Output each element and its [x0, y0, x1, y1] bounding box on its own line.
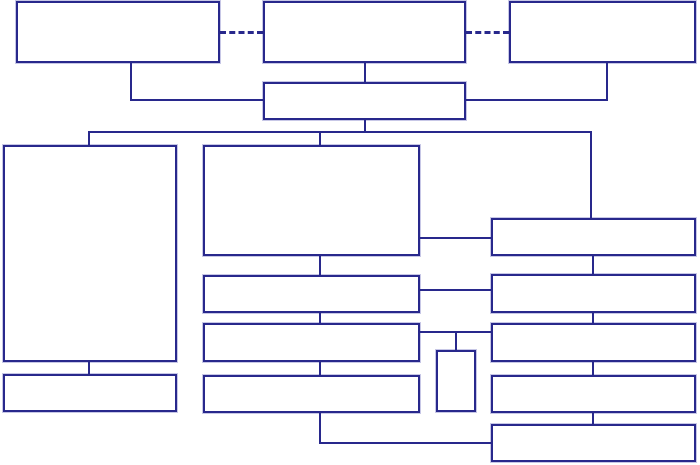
box-left-tall	[3, 145, 177, 362]
box-mid-large	[203, 145, 420, 256]
connector-dash-topleft-topcenter	[220, 31, 263, 34]
connector-topcenter-to-level2	[364, 63, 366, 82]
connector-mid4-to-right5-seg1	[319, 413, 321, 444]
connector-topleft-to-level2-seg2	[130, 99, 265, 101]
box-right-row2	[491, 274, 696, 313]
connector-right1-to-right2	[592, 256, 594, 274]
box-top-left	[16, 1, 220, 63]
connector-midlarge-to-right1	[420, 237, 492, 239]
box-left-bottom	[3, 374, 177, 412]
connector-right4-to-right5	[592, 413, 594, 424]
connector-bus-to-left-tall	[88, 131, 90, 146]
box-right-row1	[491, 218, 696, 256]
connector-dash-topcenter-topright	[466, 31, 509, 34]
box-mid-row3	[203, 323, 420, 362]
connector-right2-to-right3	[592, 313, 594, 323]
connector-topright-to-level2-seg2	[465, 99, 608, 101]
connector-mid4-to-right5-seg2	[319, 442, 493, 444]
connector-mid2-to-mid3	[319, 313, 321, 323]
box-top-right	[509, 1, 696, 63]
flowchart-canvas	[0, 0, 700, 465]
box-mid-row2	[203, 275, 420, 313]
box-right-row4	[491, 375, 696, 413]
connector-lefttall-to-leftbottom	[88, 362, 90, 374]
connector-bus-to-right1	[590, 131, 592, 219]
connector-mid2-to-right2	[420, 289, 491, 291]
connector-bus-to-mid-large	[319, 131, 321, 146]
connector-midlarge-to-mid2	[319, 256, 321, 275]
connector-right3-to-right4	[592, 362, 594, 375]
connector-topleft-to-level2-seg1	[130, 63, 132, 101]
box-small-center	[436, 350, 476, 412]
connector-main-bus	[88, 131, 592, 133]
box-right-row3	[491, 323, 696, 362]
connector-mid3-to-mid4	[319, 362, 321, 375]
box-mid-row4	[203, 375, 420, 413]
connector-right3link-to-small	[455, 331, 457, 350]
connector-topright-to-level2-seg1	[606, 62, 608, 101]
box-top-center	[263, 1, 466, 63]
box-right-row5	[491, 424, 696, 462]
box-level2-center	[263, 82, 466, 120]
